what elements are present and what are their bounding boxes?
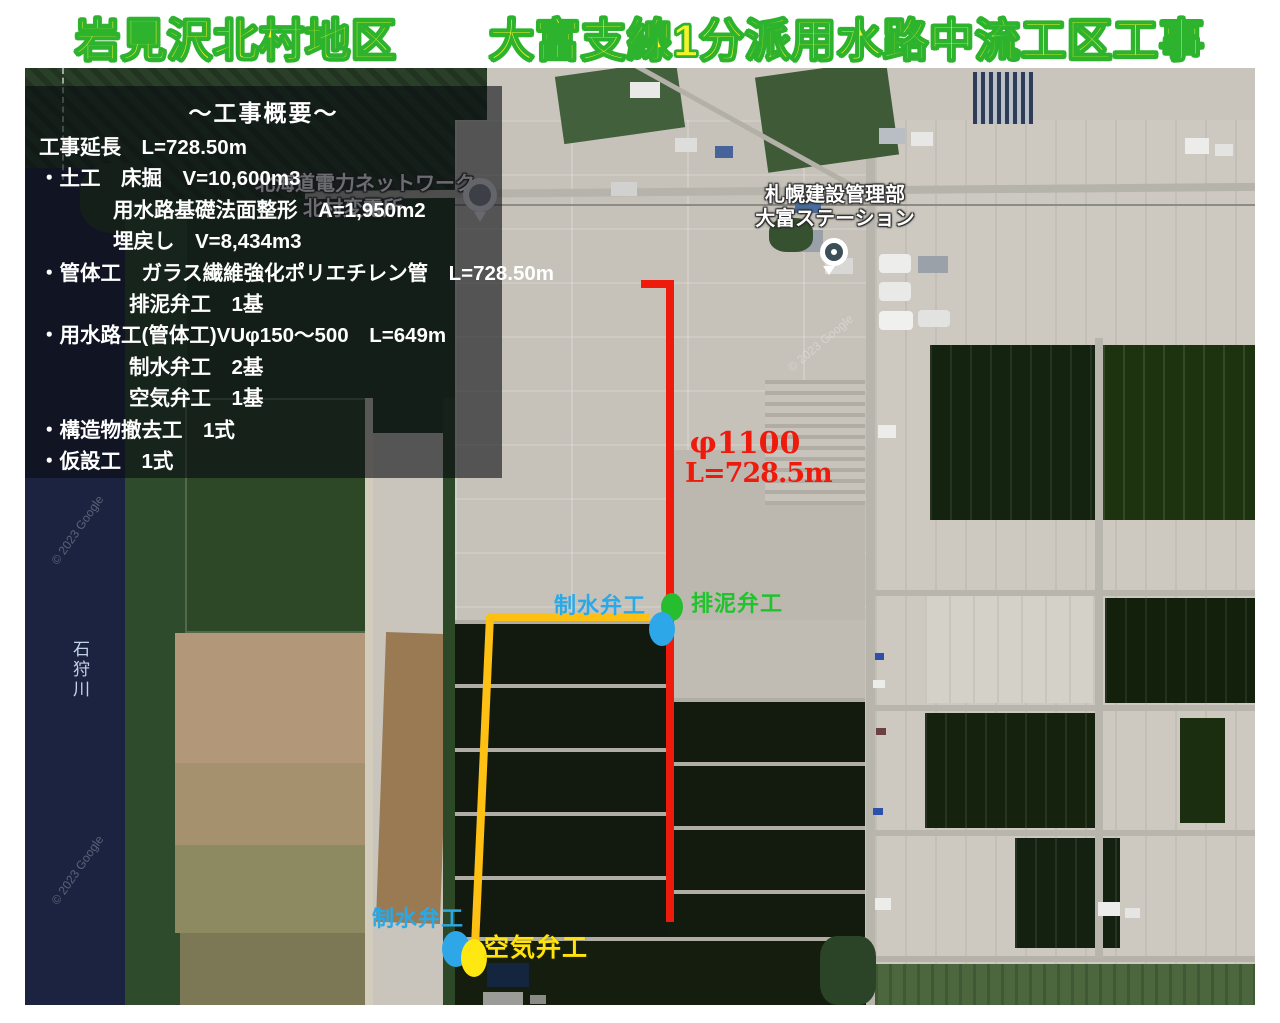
building bbox=[875, 653, 884, 660]
summary-line: 用水路基礎法面整形 A=1,950m2 bbox=[25, 195, 502, 226]
barn bbox=[879, 282, 911, 301]
station-label-line2: 大富ステーション bbox=[750, 202, 920, 231]
field bbox=[180, 933, 368, 1005]
trees bbox=[820, 936, 876, 1005]
barn bbox=[918, 310, 950, 327]
summary-line: ・用水路工(管体工)VUφ150～500 L=649m bbox=[25, 320, 502, 351]
summary-heading: ～工事概要～ bbox=[25, 94, 502, 128]
summary-line: ・仮設工 1式 bbox=[25, 446, 502, 477]
field bbox=[925, 596, 1095, 703]
crop-rows bbox=[875, 964, 1255, 1005]
summary-lines: 工事延長 L=728.50m ・土工 床掘 V=10,600m3 用水路基礎法面… bbox=[25, 132, 502, 477]
road bbox=[875, 705, 1255, 711]
barn bbox=[879, 254, 911, 273]
building bbox=[1185, 138, 1209, 154]
building bbox=[873, 680, 885, 688]
summary-line: ・土工 床掘 V=10,600m3 bbox=[25, 163, 502, 194]
satellite-map: 北海道電力ネットワーク 北村変電所 札幌建設管理部 大富ステーション 石狩川 ©… bbox=[25, 68, 1255, 1005]
map-pin-dot bbox=[831, 249, 837, 255]
summary-line: 工事延長 L=728.50m bbox=[25, 132, 502, 163]
paddy-field bbox=[667, 698, 865, 937]
building bbox=[875, 898, 891, 910]
field bbox=[175, 845, 367, 933]
barn bbox=[918, 256, 948, 273]
building bbox=[1125, 908, 1140, 918]
building bbox=[715, 146, 733, 158]
road bbox=[1095, 338, 1103, 958]
drain-valve-label: 排泥弁工 bbox=[691, 586, 783, 618]
field bbox=[667, 620, 865, 698]
paddy-field bbox=[1180, 718, 1225, 823]
building bbox=[876, 728, 886, 735]
pipe-length-label: L=728.5m bbox=[685, 460, 805, 488]
building bbox=[873, 808, 883, 815]
building bbox=[675, 138, 697, 152]
building bbox=[483, 992, 523, 1005]
paddy-field bbox=[1103, 345, 1255, 520]
greenhouse-rows bbox=[973, 72, 1033, 124]
summary-line: 埋戻し V=8,434m3 bbox=[25, 226, 502, 257]
road bbox=[875, 830, 1255, 836]
map-pin-icon bbox=[820, 238, 848, 266]
summary-line: 制水弁工 2基 bbox=[25, 352, 502, 383]
control-valve-label-bottom: 制水弁工 bbox=[372, 901, 464, 933]
building bbox=[530, 995, 546, 1004]
control-valve-label-mid: 制水弁工 bbox=[554, 588, 646, 620]
paddy-field bbox=[1105, 598, 1255, 703]
road bbox=[866, 120, 875, 1005]
air-valve-label: 空気弁工 bbox=[484, 928, 588, 964]
field bbox=[755, 68, 899, 173]
map-pin-tail bbox=[823, 266, 835, 275]
summary-line: 排泥弁工 1基 bbox=[25, 289, 502, 320]
construction-overview-page: { "title": { "text": "岩見沢北村地区 大富支線1分派用水路… bbox=[0, 0, 1280, 1023]
summary-line: ・管体工 ガラス繊維強化ポリエチレン管 L=728.50m bbox=[25, 258, 502, 289]
field bbox=[175, 633, 367, 763]
summary-line: 空気弁工 1基 bbox=[25, 383, 502, 414]
building bbox=[879, 128, 905, 144]
building bbox=[1215, 144, 1233, 156]
pond bbox=[487, 963, 529, 987]
construction-summary-panel: ～工事概要～ 工事延長 L=728.50m ・土工 床掘 V=10,600m3 … bbox=[25, 86, 502, 478]
field bbox=[175, 763, 367, 845]
building bbox=[630, 82, 660, 98]
page-title: 岩見沢北村地区 大富支線1分派用水路中流工区工事 bbox=[0, 4, 1280, 69]
pipe-diameter-label: φ1100 bbox=[685, 428, 805, 460]
control-valve-marker-mid bbox=[649, 612, 675, 646]
building bbox=[611, 182, 637, 196]
road bbox=[875, 956, 1255, 962]
building bbox=[911, 132, 933, 146]
building bbox=[878, 425, 896, 438]
building bbox=[1098, 902, 1120, 916]
paddy-field bbox=[930, 345, 1095, 520]
paddy-field bbox=[925, 713, 1095, 828]
summary-line: ・構造物撤去工 1式 bbox=[25, 415, 502, 446]
pipe-spec-label: φ1100 L=728.5m bbox=[685, 428, 805, 488]
river-name-label: 石狩川 bbox=[67, 640, 92, 700]
barn bbox=[879, 311, 913, 330]
field bbox=[376, 632, 450, 924]
paddy-field bbox=[1015, 838, 1120, 948]
